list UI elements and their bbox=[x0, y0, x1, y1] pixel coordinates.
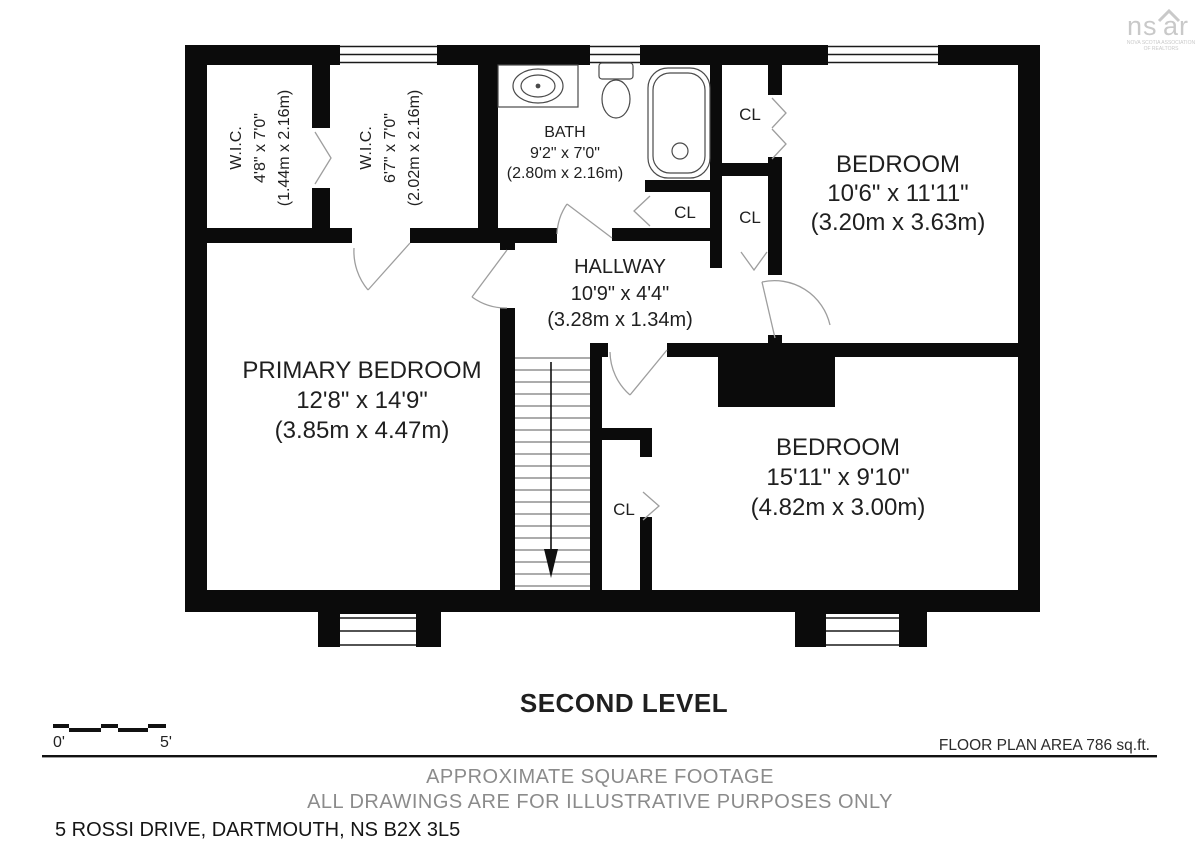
room-dim-metric: (4.82m x 3.00m) bbox=[751, 494, 926, 521]
staircase bbox=[515, 358, 590, 586]
closet-label: CL bbox=[739, 105, 761, 124]
room-dim-imperial: 10'6" x 11'11" bbox=[827, 180, 968, 207]
room-label-wic2: W.I.C. 6'7" x 7'0" (2.02m x 2.16m) bbox=[358, 90, 423, 206]
room-name: HALLWAY bbox=[574, 256, 666, 278]
logo-text-left: ns bbox=[1127, 11, 1158, 41]
chimney-block bbox=[718, 357, 835, 407]
disclaimer-line-2: ALL DRAWINGS ARE FOR ILLUSTRATIVE PURPOS… bbox=[307, 791, 893, 813]
wic1-bifold-door bbox=[315, 132, 331, 184]
room-name: W.I.C. bbox=[358, 126, 375, 170]
nsar-logo: ns ar NOVA SCOTIA ASSOCIATION OF REALTOR… bbox=[1127, 11, 1196, 52]
closet-label: CL bbox=[739, 208, 761, 227]
closet-label: CL bbox=[613, 500, 635, 519]
room-dim-metric: (3.85m x 4.47m) bbox=[275, 417, 450, 444]
room-label-bedroom-top: BEDROOM 10'6" x 11'11" (3.20m x 3.63m) bbox=[811, 151, 986, 236]
bedroom-top-door bbox=[762, 281, 830, 338]
room-dim-metric: (1.44m x 2.16m) bbox=[276, 90, 293, 206]
footer-divider bbox=[42, 755, 1157, 757]
floor-plan-page: W.I.C. 4'8" x 7'0" (1.44m x 2.16m) W.I.C… bbox=[0, 0, 1200, 848]
room-name: PRIMARY BEDROOM bbox=[242, 357, 481, 384]
scale-start-label: 0' bbox=[53, 734, 65, 751]
wic2-door bbox=[354, 243, 410, 290]
bottom-closet-bifold bbox=[643, 492, 659, 520]
room-dim-metric: (2.02m x 2.16m) bbox=[406, 90, 423, 206]
bedroom-closet-bifold-2 bbox=[772, 129, 786, 159]
level-title: SECOND LEVEL bbox=[520, 688, 728, 718]
closet-label: CL bbox=[674, 203, 696, 222]
window-top-1 bbox=[340, 47, 437, 63]
room-dim-imperial: 15'11" x 9'10" bbox=[766, 464, 909, 491]
room-name: BATH bbox=[544, 124, 585, 141]
hallway-closet-bifold bbox=[741, 252, 767, 270]
scale-end-label: 5' bbox=[160, 734, 172, 751]
room-dim-imperial: 4'8" x 7'0" bbox=[252, 113, 269, 183]
room-label-hallway: HALLWAY 10'9" x 4'4" (3.28m x 1.34m) bbox=[547, 256, 693, 331]
room-label-bath: BATH 9'2" x 7'0" (2.80m x 2.16m) bbox=[507, 124, 623, 182]
room-name: BEDROOM bbox=[776, 434, 900, 461]
room-name: W.I.C. bbox=[228, 126, 245, 170]
toilet-icon bbox=[599, 63, 633, 118]
room-dim-imperial: 9'2" x 7'0" bbox=[530, 145, 600, 162]
window-top-2 bbox=[590, 47, 640, 63]
room-dim-metric: (2.80m x 2.16m) bbox=[507, 165, 623, 182]
room-dim-imperial: 10'9" x 4'4" bbox=[571, 283, 670, 305]
bay-window-bedroom bbox=[826, 614, 899, 647]
bedroom-closet-bifold-1 bbox=[772, 98, 786, 128]
floor-plan-area-note: FLOOR PLAN AREA 786 sq.ft. bbox=[939, 737, 1150, 754]
walls bbox=[185, 45, 1040, 647]
bath-closet-bifold bbox=[634, 196, 650, 226]
window-top-3 bbox=[828, 47, 938, 63]
bath-door bbox=[557, 204, 612, 238]
logo-subtext-2: OF REALTORS bbox=[1144, 46, 1179, 52]
room-dim-imperial: 6'7" x 7'0" bbox=[382, 113, 399, 183]
room-label-bedroom-bottom: BEDROOM 15'11" x 9'10" (4.82m x 3.00m) bbox=[751, 434, 926, 521]
room-label-primary-bedroom: PRIMARY BEDROOM 12'8" x 14'9" (3.85m x 4… bbox=[242, 357, 481, 444]
room-label-wic1: W.I.C. 4'8" x 7'0" (1.44m x 2.16m) bbox=[228, 90, 293, 206]
sink-icon bbox=[498, 65, 578, 107]
scale-bar: 0' 5' bbox=[53, 724, 172, 751]
primary-bedroom-door bbox=[472, 250, 507, 308]
floor-plan-drawing: W.I.C. 4'8" x 7'0" (1.44m x 2.16m) W.I.C… bbox=[0, 0, 1200, 848]
room-name: BEDROOM bbox=[836, 151, 960, 178]
bedroom-bottom-door bbox=[610, 350, 667, 395]
logo-text-right: ar bbox=[1163, 11, 1189, 41]
room-dim-metric: (3.20m x 3.63m) bbox=[811, 209, 986, 236]
property-address: 5 ROSSI DRIVE, DARTMOUTH, NS B2X 3L5 bbox=[55, 819, 460, 841]
disclaimer-line-1: APPROXIMATE SQUARE FOOTAGE bbox=[426, 766, 774, 788]
room-dim-imperial: 12'8" x 14'9" bbox=[296, 387, 428, 414]
room-dim-metric: (3.28m x 1.34m) bbox=[547, 309, 693, 331]
bathtub-icon bbox=[648, 68, 710, 178]
bay-window-primary bbox=[340, 614, 416, 647]
